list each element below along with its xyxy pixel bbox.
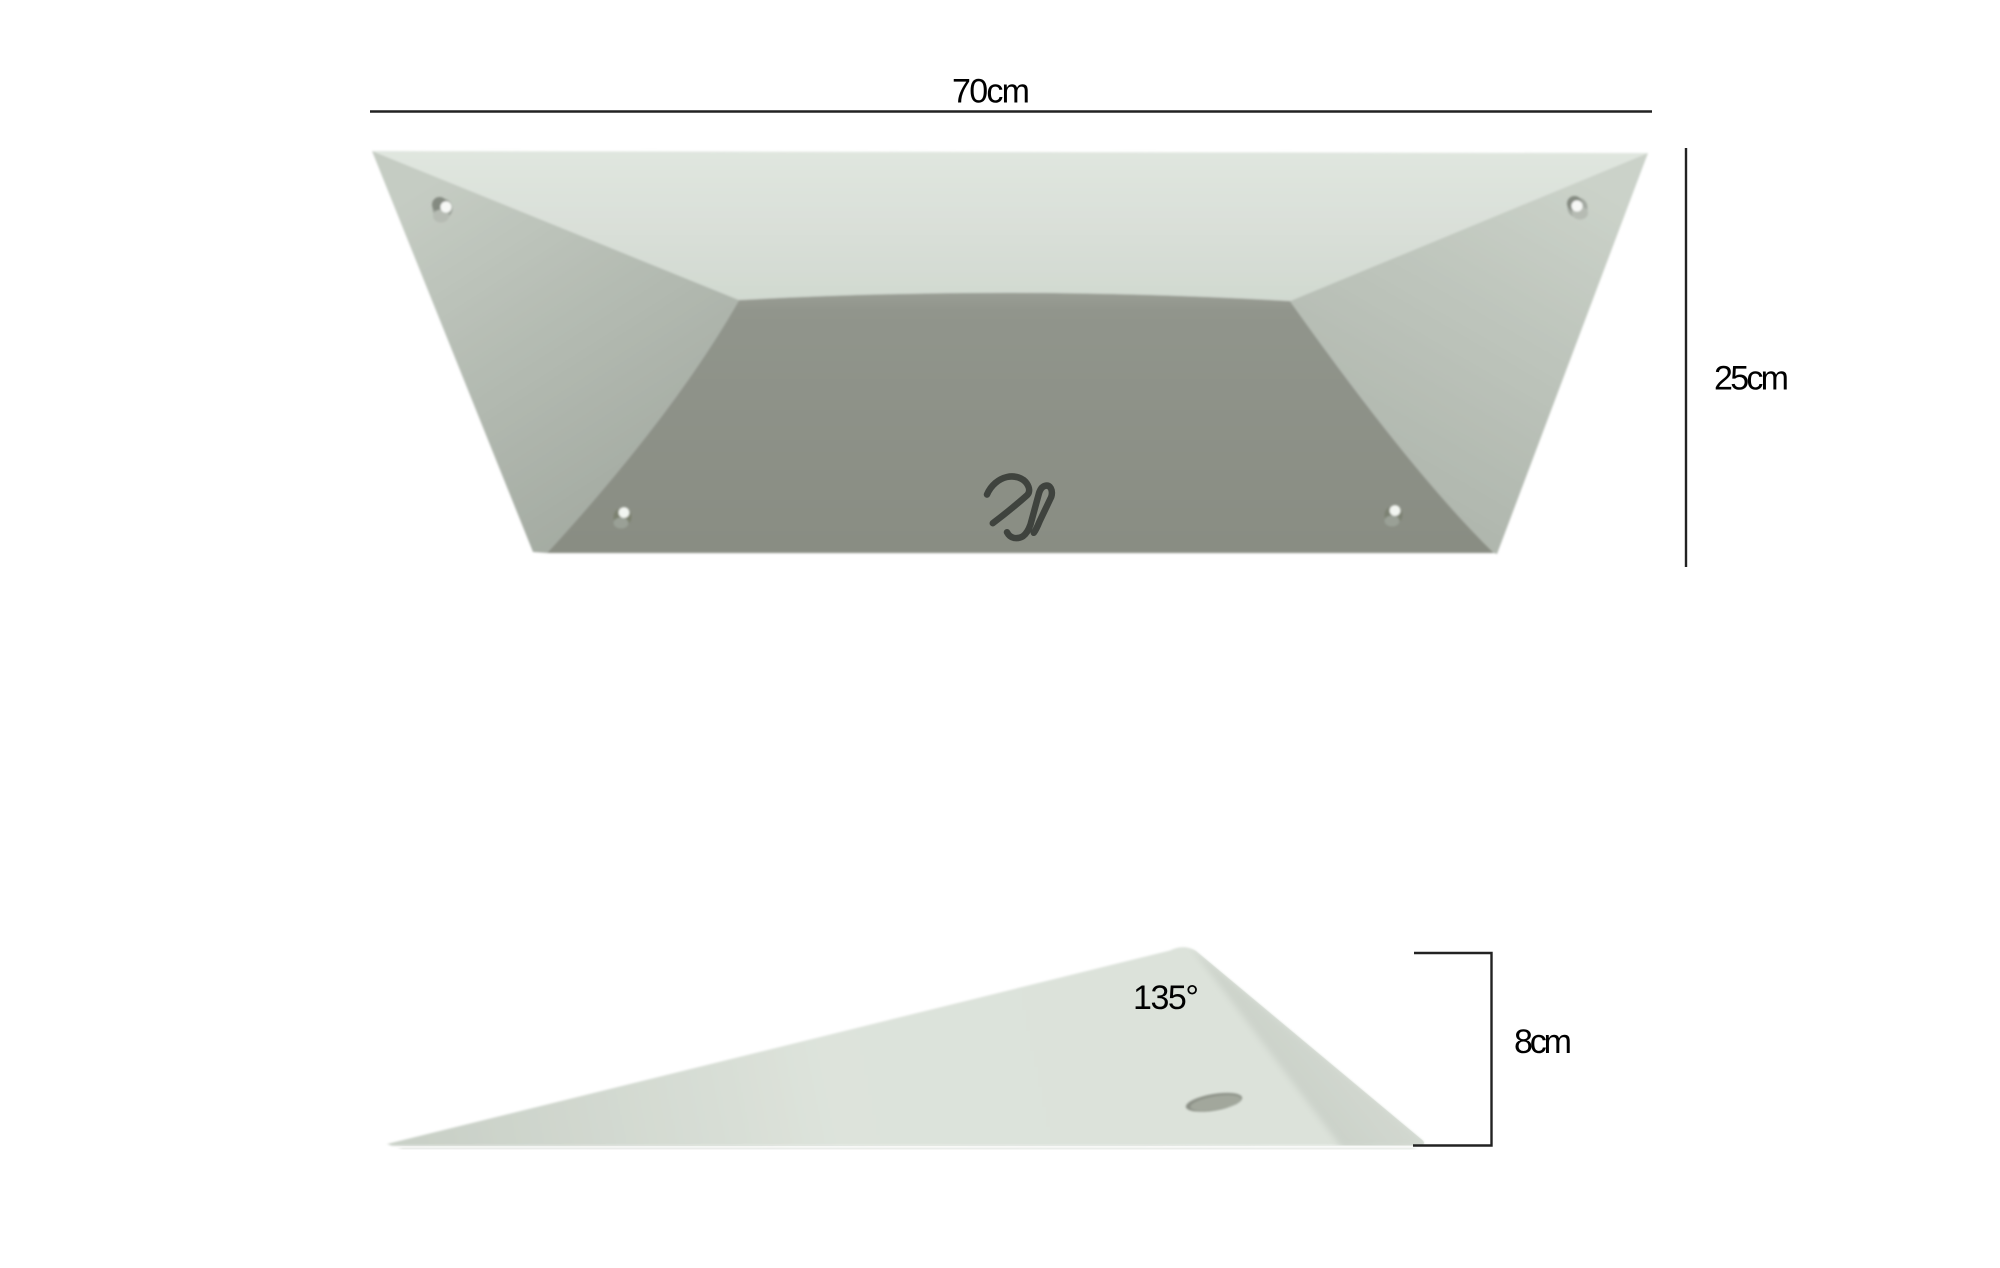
svg-text:70cm: 70cm [952, 73, 1030, 111]
svg-text:25cm: 25cm [1714, 360, 1789, 398]
svg-text:8cm: 8cm [1514, 1023, 1572, 1061]
svg-text:135°: 135° [1133, 979, 1199, 1017]
